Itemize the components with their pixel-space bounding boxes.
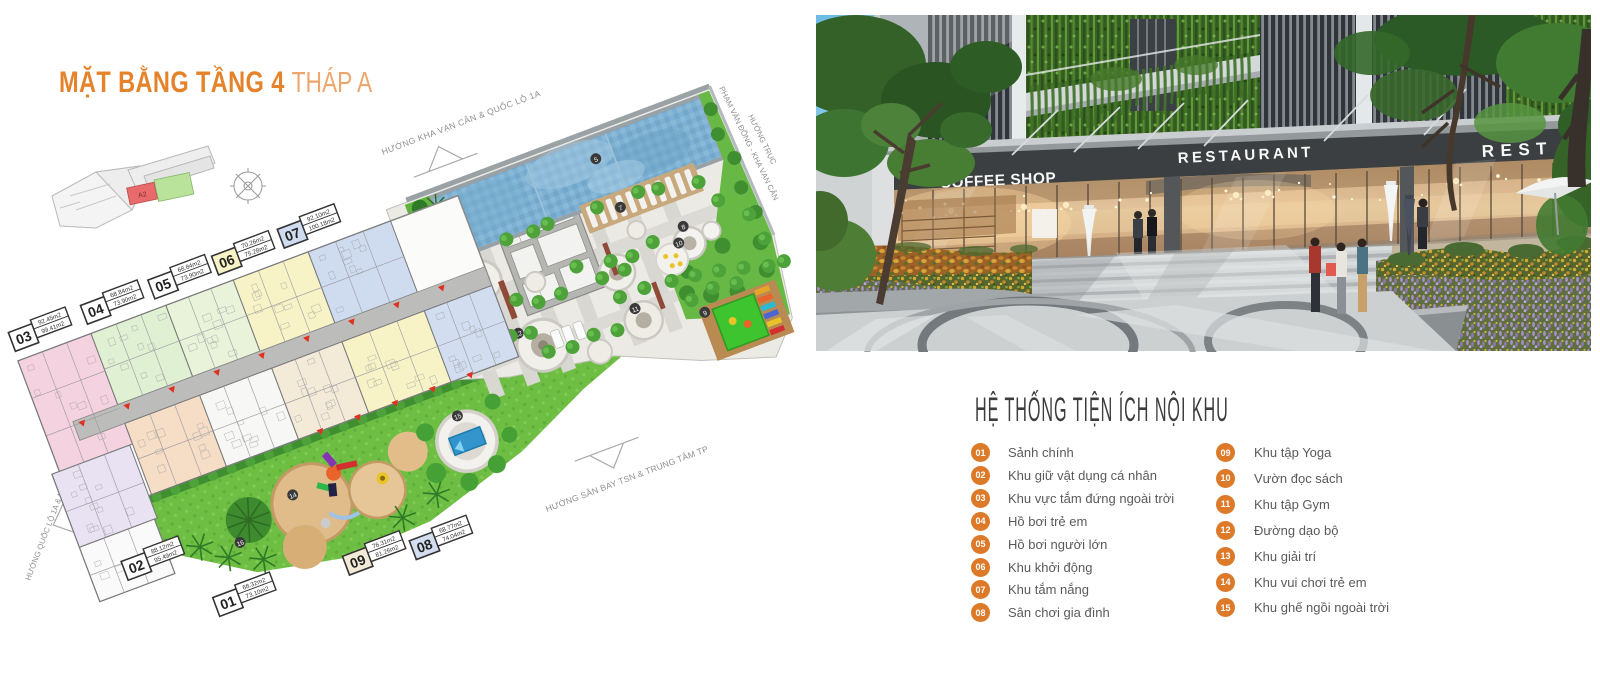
svg-text:HƯỚNG SÂN BAY TSN & TRUNG TÂM: HƯỚNG SÂN BAY TSN & TRUNG TÂM TP	[544, 444, 709, 514]
svg-text:HƯỚNG KHA VẠN CÂN & QUỐC LỘ 1A: HƯỚNG KHA VẠN CÂN & QUỐC LỘ 1A	[380, 87, 542, 157]
